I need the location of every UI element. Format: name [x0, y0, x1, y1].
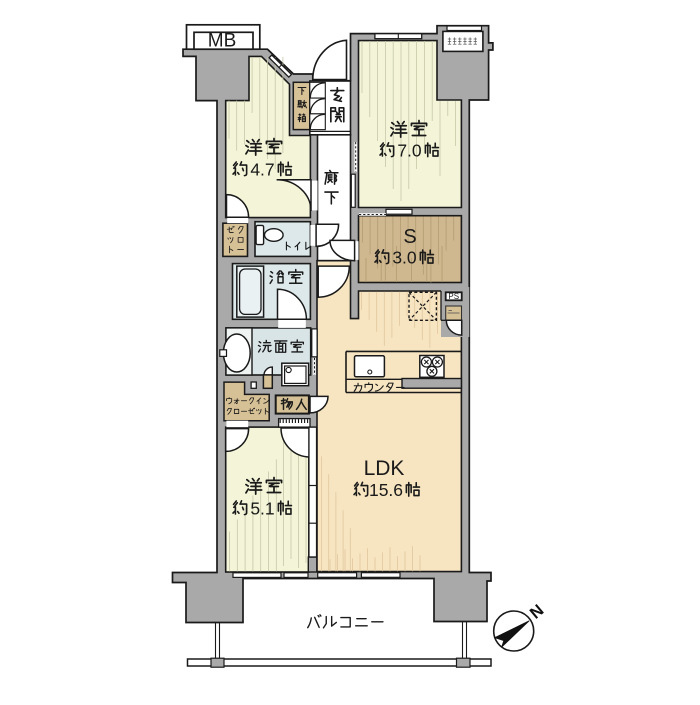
svg-text:LDK: LDK	[364, 457, 405, 480]
svg-text:S: S	[403, 226, 416, 248]
svg-text:3.0: 3.0	[392, 248, 417, 268]
svg-text:15.6: 15.6	[369, 480, 403, 500]
svg-text:MB: MB	[208, 31, 237, 52]
svg-text:5.1: 5.1	[250, 499, 274, 519]
svg-text:4.7: 4.7	[250, 160, 274, 180]
svg-text:PS: PS	[448, 292, 459, 301]
svg-text:7.0: 7.0	[397, 141, 422, 161]
